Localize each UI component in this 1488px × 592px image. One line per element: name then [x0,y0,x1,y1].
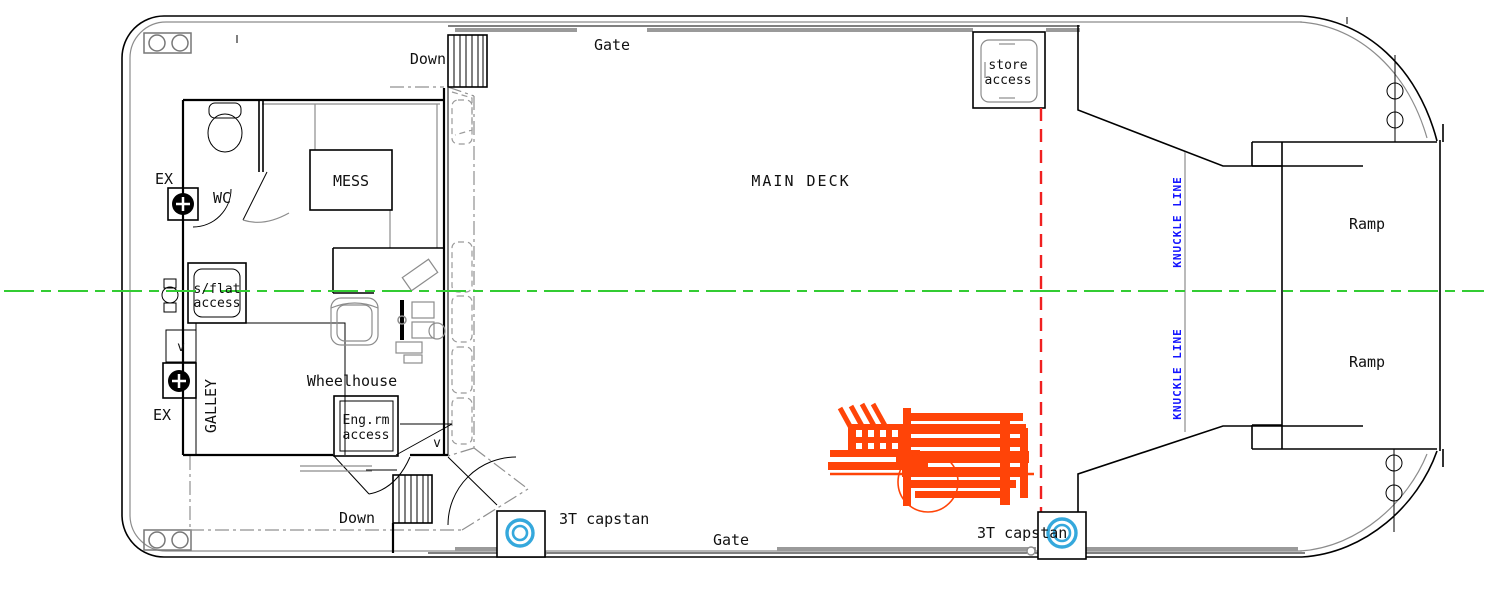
hull-outline [122,16,1437,557]
label-v-right: v [433,436,441,451]
label-engrm-1: Eng.rm [343,413,390,428]
label-sflat-1: s/flat [194,282,241,297]
label-wc: WC [213,189,231,207]
side-fairlead [162,279,178,312]
deck-plan-svg: Down Down Gate Gate MAIN DECK WC MESS Wh… [0,0,1488,592]
label-v-left: v [177,340,185,355]
label-knuckle-line-bottom: KNUCKLE LINE [1171,328,1184,419]
upper-deck-outline [190,87,528,530]
label-capstan-right: 3T capstan [977,524,1067,542]
label-store-2: access [985,73,1032,88]
label-down-top: Down [410,50,446,68]
label-gate-bottom: Gate [713,531,749,549]
forklift-graphic [828,404,1034,512]
label-store-1: store [988,58,1027,73]
bollard-plate-bottom-left [144,530,191,550]
label-wheelhouse: Wheelhouse [307,372,397,390]
label-ex-bottom: EX [153,406,171,424]
capstan-left [497,511,546,557]
deck-plan-page: Down Down Gate Gate MAIN DECK WC MESS Wh… [0,0,1488,592]
label-capstan-left: 3T capstan [559,510,649,528]
label-knuckle-line-top: KNUCKLE LINE [1171,176,1184,267]
bollard-plate-top-left [144,33,191,53]
label-sflat-2: access [194,296,241,311]
label-down-bottom: Down [339,509,375,527]
stern-ramp-structure [1078,25,1443,553]
label-engrm-2: access [343,428,390,443]
fire-extinguisher-icon [163,363,196,398]
label-ramp-top: Ramp [1349,215,1385,233]
stair-bottom [366,470,432,553]
helm-chair [331,298,378,345]
aft-doors [300,455,516,525]
label-ex-top: EX [155,170,173,188]
label-ramp-bottom: Ramp [1349,353,1385,371]
steering-wheel [398,300,406,340]
label-galley: GALLEY [202,379,220,433]
label-mess: MESS [333,172,369,190]
stair-top [448,35,487,87]
label-gate-top: Gate [594,36,630,54]
label-main-deck: MAIN DECK [751,172,850,190]
